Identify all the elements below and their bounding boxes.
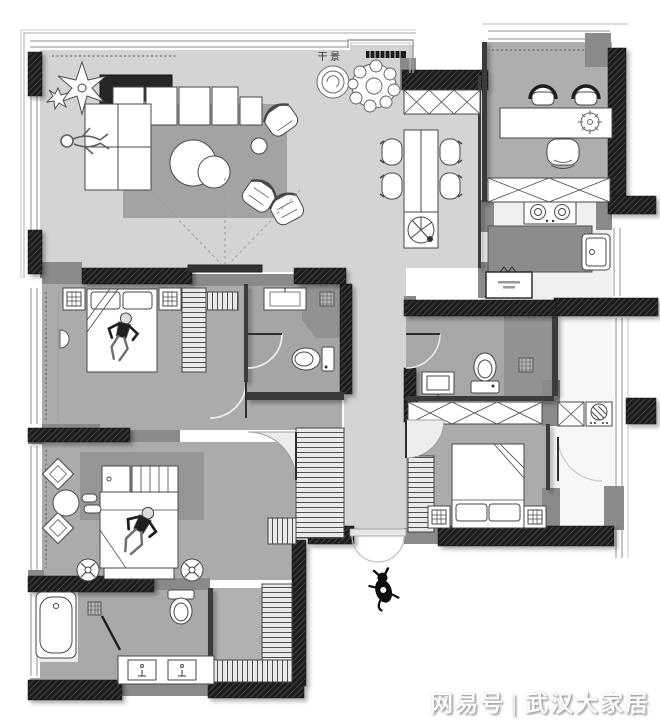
master-toilet: [168, 590, 194, 624]
desk: [500, 108, 612, 138]
bed-lamp-right: [181, 559, 203, 581]
wall-bed2-laundry: [546, 424, 550, 490]
wall-living-south-b: [294, 268, 346, 284]
bathroom-2-sink: [422, 372, 454, 398]
nightstand-lamp-left: [63, 288, 85, 310]
bathroom-2-drain: [519, 358, 533, 372]
wall-kitchen-south-band: [554, 298, 658, 316]
side-table: [251, 138, 267, 154]
tray-2: [84, 505, 101, 513]
wall-living-south-a: [82, 268, 192, 284]
washing-machine: [586, 402, 612, 426]
guest-chair-1: [530, 86, 556, 105]
watermark: 网易号|武汉大家居: [430, 684, 650, 718]
wardrobe-closet-east: [262, 584, 292, 660]
light-well-floor: [556, 316, 612, 398]
wall-bath-south: [28, 680, 122, 700]
office-chair: [547, 139, 579, 169]
dining-plant: [404, 212, 438, 248]
wall-bathroom1-south: [246, 392, 344, 400]
entry-door: [350, 529, 406, 562]
nightstand-lamp-bed2-left: [428, 506, 450, 528]
entry-screen-bar: [366, 51, 406, 58]
bathroom-1-toilet: [292, 347, 334, 371]
wall-master-north: [28, 428, 130, 442]
wall-bed1-bath1-divider: [244, 284, 248, 382]
wall-closet-south: [208, 680, 304, 698]
wardrobe-master-L: [268, 518, 296, 544]
wardrobe-closet-south: [214, 660, 292, 682]
wall-stub-left-top: [28, 52, 42, 96]
dog-figure: [365, 566, 400, 611]
wall-study-right-chunk: [608, 196, 656, 214]
window-kitchen-right: [612, 226, 622, 298]
bathroom-1-drain: [320, 292, 334, 306]
nightstand-lamp-right: [159, 288, 181, 310]
floor-plan-page: 干景 网易号|武汉大家居: [0, 0, 660, 724]
round-table: [53, 490, 79, 516]
laundry-cabinet: [558, 402, 584, 426]
wardrobe-bedroom-1: [182, 288, 206, 372]
wall-entry-top: [402, 70, 488, 90]
study-cabinet: [488, 178, 610, 202]
wall-bedroom2-south: [438, 526, 614, 546]
dry-landscape-label: 干景: [318, 51, 343, 63]
bathroom-1-sink: [264, 288, 306, 310]
headboard-shelf: [132, 466, 178, 492]
kitchen-sink: [582, 234, 610, 270]
wall-stub-left-mid: [28, 230, 42, 274]
coffee-table-small: [198, 156, 230, 188]
floor-plan-canvas: 干景: [0, 0, 660, 724]
wall-laundry-chunk: [626, 398, 656, 424]
bed-lamp-left: [77, 559, 99, 581]
watermark-brand-logo: 网易号: [430, 690, 505, 716]
kitchen-island: [488, 226, 592, 272]
headboard-cabinet: [102, 466, 130, 492]
wardrobe-corridor: [296, 428, 344, 538]
wall-study-left: [482, 42, 487, 202]
watermark-site-name: 武汉大家居: [525, 690, 650, 716]
shower-drain-master: [88, 602, 101, 615]
watermark-divider: |: [511, 690, 519, 716]
wall-bathroom1-east: [340, 284, 352, 394]
bathtub: [36, 588, 76, 658]
entry-cabinet: [404, 90, 480, 114]
wardrobe-bedroom-1-top: [206, 292, 238, 310]
nightstand-lamp-bed2-right: [524, 506, 546, 528]
tray-1: [82, 494, 97, 502]
vanity-double-sink: [118, 656, 214, 684]
bed-2: [452, 444, 524, 528]
guest-chair-2: [573, 86, 599, 105]
wall-bathroom2-north: [404, 300, 556, 316]
appliance: [486, 267, 532, 298]
master-bed: [100, 492, 178, 579]
wall-bathroom2-east: [552, 316, 558, 396]
stove: [524, 202, 576, 224]
wall-corridor-right-a: [404, 368, 416, 398]
wall-bathroom2-south: [406, 396, 554, 401]
decorative-circles: [317, 66, 349, 98]
wall-closet-west: [292, 540, 306, 686]
